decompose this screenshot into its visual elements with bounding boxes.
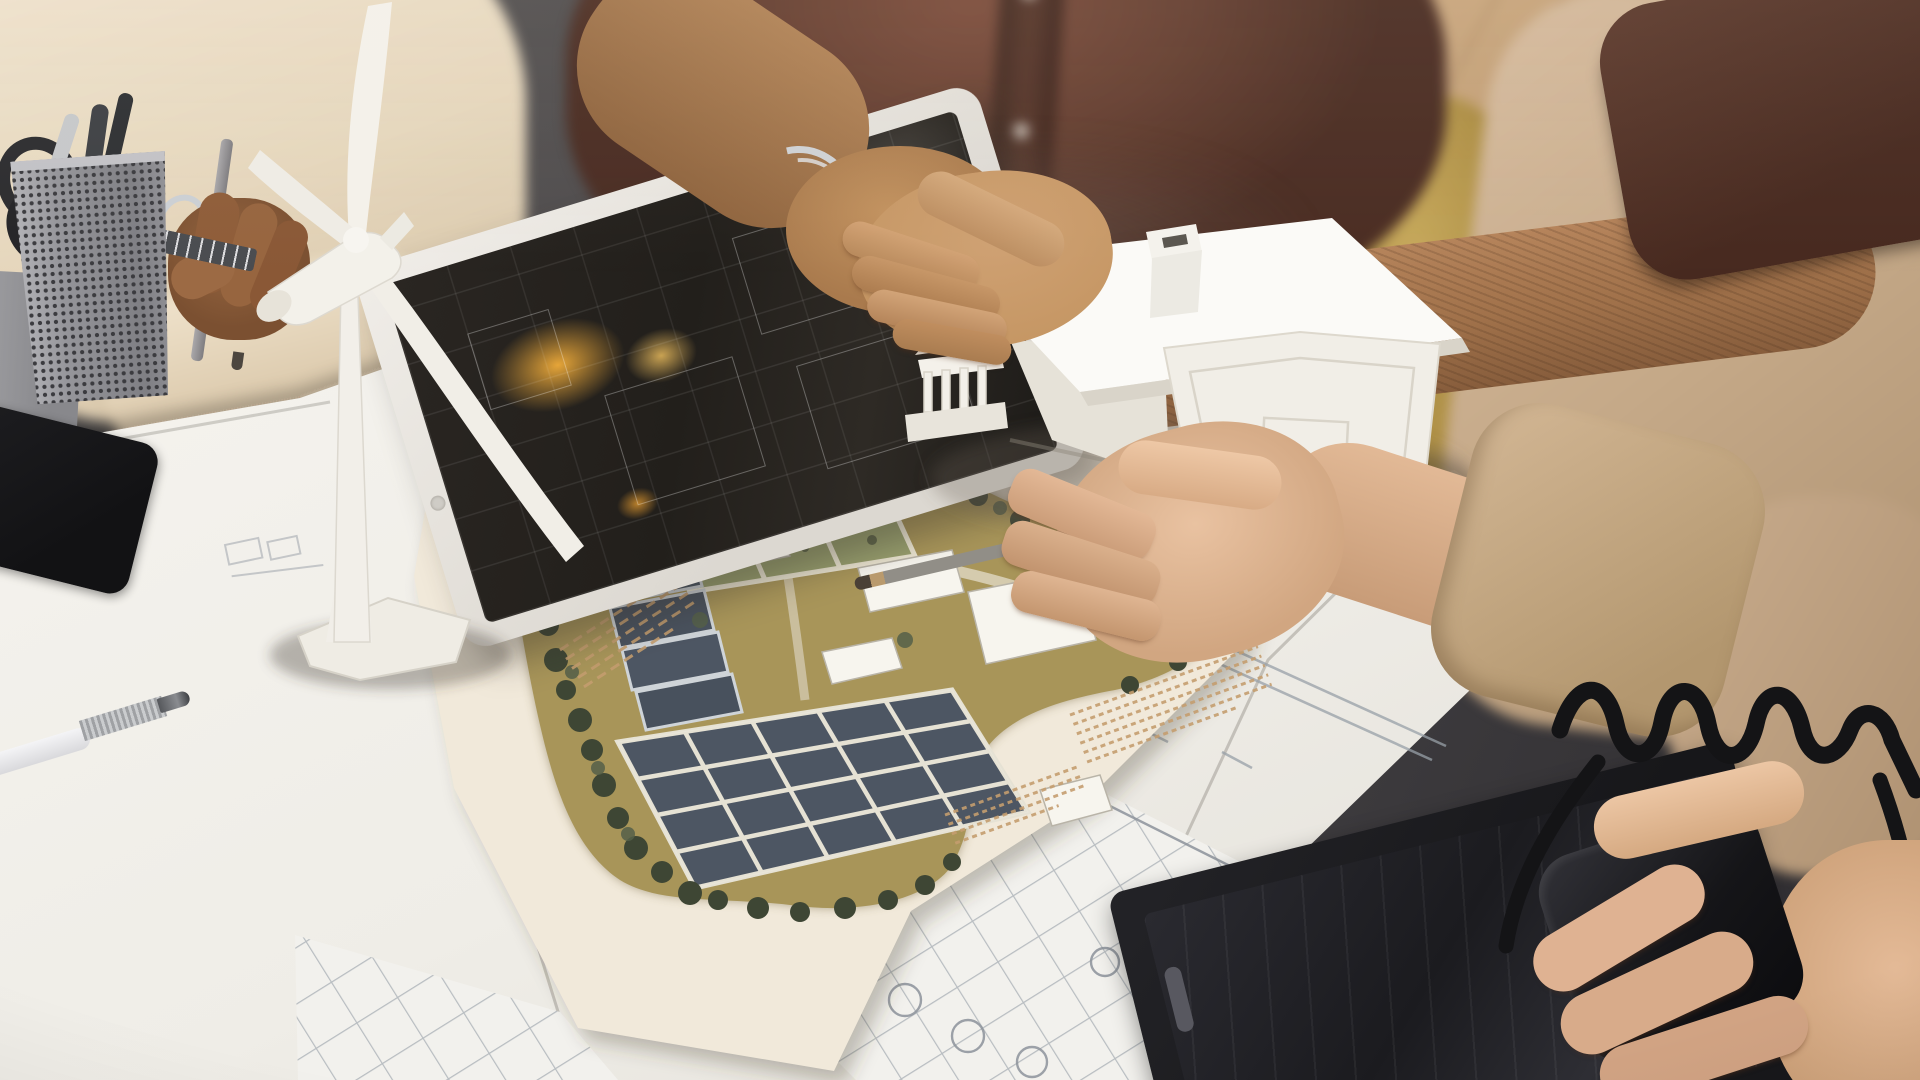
vignette-overlay xyxy=(0,0,1920,1080)
photo-scene xyxy=(0,0,1920,1080)
